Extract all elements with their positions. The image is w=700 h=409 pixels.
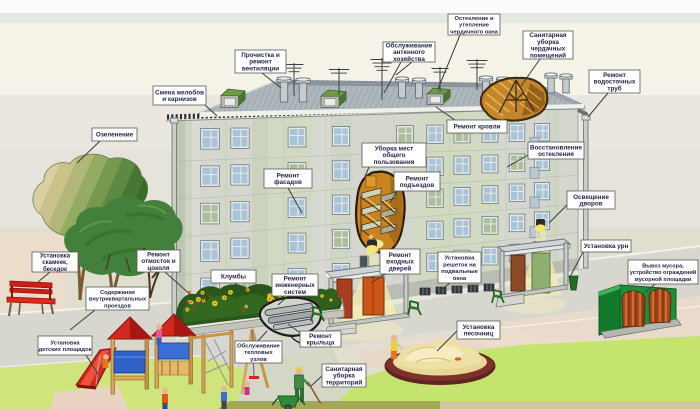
svg-text:утепление: утепление xyxy=(459,23,490,29)
svg-text:остекления: остекления xyxy=(538,151,574,158)
svg-text:Клумбы: Клумбы xyxy=(221,273,246,281)
svg-text:Ремонт кровли: Ремонт кровли xyxy=(453,124,500,131)
svg-text:подъездов: подъездов xyxy=(400,182,435,189)
svg-text:уборка: уборка xyxy=(333,372,355,380)
svg-text:Вывоз мусора,: Вывоз мусора, xyxy=(642,263,684,269)
svg-text:крыльца: крыльца xyxy=(307,340,335,347)
svg-text:Содержание: Содержание xyxy=(100,290,135,296)
svg-text:Установка урн: Установка урн xyxy=(584,243,629,250)
svg-text:Смена желобов: Смена желобов xyxy=(155,88,204,96)
svg-text:узлов: узлов xyxy=(250,357,267,363)
svg-text:систем: систем xyxy=(284,289,306,296)
svg-text:цоколя: цоколя xyxy=(147,265,169,272)
svg-text:Озеленение: Озеленение xyxy=(96,132,134,139)
svg-text:Установка: Установка xyxy=(50,340,80,346)
svg-text:решеток на: решеток на xyxy=(443,262,477,268)
svg-text:Установка: Установка xyxy=(445,256,475,262)
svg-text:общего: общего xyxy=(383,151,406,159)
svg-text:окна: окна xyxy=(453,276,467,282)
svg-text:Обслуживание: Обслуживание xyxy=(386,41,433,49)
svg-text:дверей: дверей xyxy=(389,265,412,273)
svg-text:дворов: дворов xyxy=(579,201,602,208)
svg-text:песочниц: песочниц xyxy=(464,331,494,338)
svg-text:Остекление и: Остекление и xyxy=(454,16,493,22)
svg-text:вентиляции: вентиляции xyxy=(242,66,279,73)
svg-text:пользования: пользования xyxy=(374,159,415,166)
svg-text:фасадов: фасадов xyxy=(274,179,302,186)
svg-text:уборка: уборка xyxy=(537,38,559,46)
svg-text:детских площадок: детских площадок xyxy=(38,347,91,353)
svg-text:мусорной площадки: мусорной площадки xyxy=(635,276,692,283)
svg-text:беседок: беседок xyxy=(43,266,67,273)
svg-text:чердачного окна: чердачного окна xyxy=(450,30,499,36)
svg-text:помещений: помещений xyxy=(530,51,566,59)
svg-text:скамеек,: скамеек, xyxy=(42,260,68,266)
svg-text:и карнизов: и карнизов xyxy=(162,96,197,103)
svg-text:Уборка мест: Уборка мест xyxy=(375,144,413,152)
svg-text:тепловых: тепловых xyxy=(244,350,273,356)
svg-text:Обслуживание: Обслуживание xyxy=(237,342,281,349)
svg-text:устройство ограждений: устройство ограждений xyxy=(630,269,697,276)
svg-text:территорий: территорий xyxy=(326,379,363,387)
svg-text:проездов: проездов xyxy=(104,304,131,310)
svg-text:труб: труб xyxy=(607,85,621,93)
svg-text:внутриквартальных: внутриквартальных xyxy=(89,297,147,303)
svg-text:хозяйства: хозяйства xyxy=(393,55,425,63)
svg-text:подвальные: подвальные xyxy=(441,269,479,275)
svg-text:Установка: Установка xyxy=(40,253,71,259)
